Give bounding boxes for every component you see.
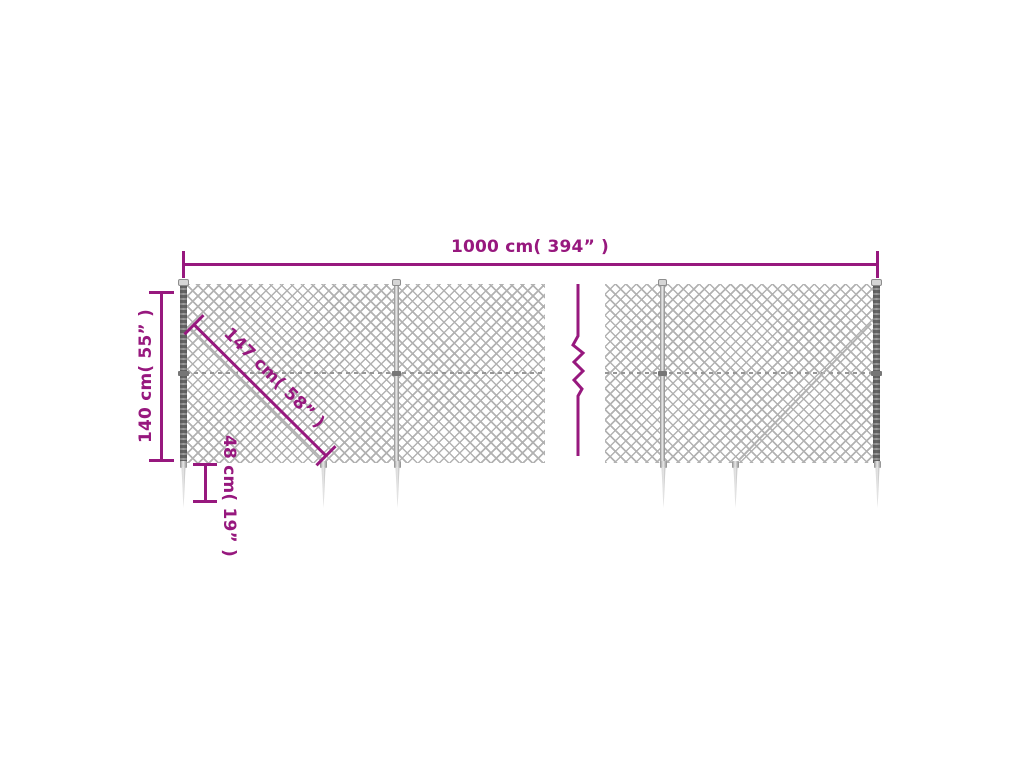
- dimension-end-tick: [876, 251, 879, 278]
- ground-anchor-spike: [659, 461, 668, 508]
- fence-post: [394, 283, 399, 463]
- break-symbol-icon: [570, 284, 586, 456]
- fence-end-post-left: [180, 283, 187, 463]
- ground-anchor-spike: [873, 461, 882, 508]
- dimension-end-tick: [149, 291, 174, 294]
- dimension-line: [204, 464, 207, 502]
- post-clamp: [178, 371, 189, 376]
- chain-link-mesh-left: [186, 284, 545, 463]
- tension-wire: [605, 372, 877, 374]
- dimension-line: [183, 263, 878, 266]
- ground-anchor-spike: [731, 461, 740, 508]
- ground-anchor-spike: [393, 461, 402, 508]
- dimension-line: [160, 292, 163, 461]
- chain-link-mesh-right: [605, 284, 877, 463]
- post-cap: [392, 279, 401, 286]
- dimension-end-tick: [149, 459, 174, 462]
- post-cap: [871, 279, 882, 286]
- ground-anchor-spike: [179, 461, 188, 508]
- post-clamp: [392, 371, 401, 376]
- fence-dimension-diagram: 1000 cm( 394” ) 140 cm( 55” ) 147 cm( 58…: [0, 0, 1024, 768]
- total-width-label: 1000 cm( 394” ): [380, 237, 680, 257]
- spike-length-label: 48 cm( 19” ): [219, 435, 239, 553]
- ground-anchor-spike: [319, 461, 328, 508]
- fence-height-label: 140 cm( 55” ): [136, 306, 156, 446]
- fence-post: [660, 283, 665, 463]
- fence-end-post-right: [873, 283, 880, 463]
- post-cap: [658, 279, 667, 286]
- dimension-end-tick: [182, 251, 185, 278]
- dimension-end-tick: [193, 500, 217, 503]
- dimension-end-tick: [193, 463, 217, 466]
- post-clamp: [871, 371, 882, 376]
- post-cap: [178, 279, 189, 286]
- post-clamp: [658, 371, 667, 376]
